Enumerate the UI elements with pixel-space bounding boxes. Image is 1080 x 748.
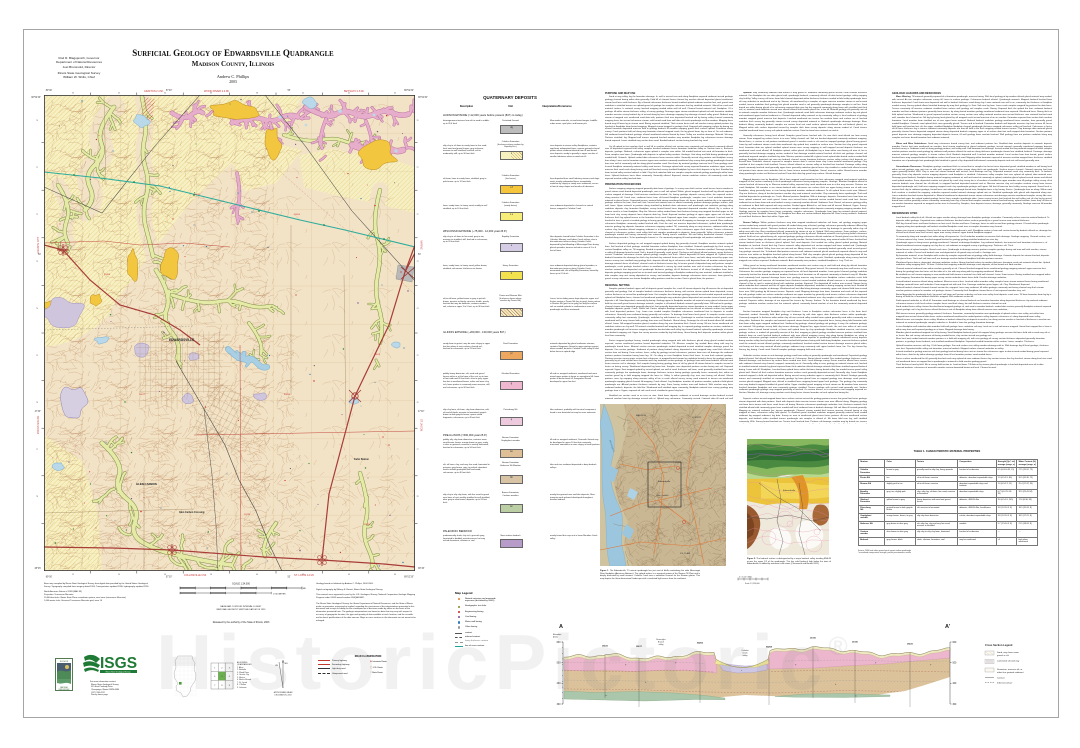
svg-text:Glen Carbon Crossing: Glen Carbon Crossing — [179, 511, 205, 514]
svg-text:54: 54 — [118, 574, 120, 576]
svg-text:MARINE: MARINE — [420, 240, 423, 250]
svg-text:ILLINOIS: ILLINOIS — [60, 661, 69, 663]
svg-text:71: 71 — [36, 167, 38, 169]
svg-text:84206: 84206 — [284, 394, 291, 396]
svg-text:SCALE 1:24,000: SCALE 1:24,000 — [232, 583, 250, 586]
svg-text:GRAFTON 2.4 MI.: GRAFTON 2.4 MI. — [144, 90, 164, 93]
svg-text:34: 34 — [164, 93, 166, 95]
svg-text:gravel or silt: gravel or silt — [997, 654, 1009, 657]
svg-text:70: 70 — [417, 120, 419, 122]
svg-text:GRANITE CITY: GRANITE CITY — [37, 236, 40, 253]
svg-text:77: 77 — [36, 449, 38, 451]
svg-text:Scale 1:1,250,000: Scale 1:1,250,000 — [745, 583, 760, 585]
svg-text:COUNTY: COUNTY — [692, 417, 702, 419]
svg-text:MADISON: MADISON — [636, 414, 647, 417]
svg-text:78: 78 — [417, 496, 419, 498]
svg-text:38°45': 38°45' — [418, 568, 425, 570]
svg-text:89°52'30": 89°52'30" — [404, 577, 414, 579]
svg-text:1 KILOMETER: 1 KILOMETER — [273, 593, 286, 595]
svg-text:Diamicton, massive silt, or: Diamicton, massive silt, or — [997, 668, 1023, 671]
svg-text:78: 78 — [36, 496, 38, 498]
svg-text:73: 73 — [36, 261, 38, 263]
svg-text:60: 60 — [256, 574, 258, 576]
svg-text:56: 56 — [164, 574, 166, 576]
svg-text:26617: 26617 — [139, 394, 146, 396]
svg-text:ST. JACOB: ST. JACOB — [420, 419, 423, 431]
svg-text:89°00': 89°00' — [46, 90, 53, 92]
svg-text:47'30": 47'30" — [418, 411, 425, 413]
svg-text:57'30": 57'30" — [166, 90, 173, 92]
svg-text:26488: 26488 — [104, 274, 111, 276]
svg-text:47'30": 47'30" — [35, 411, 42, 413]
svg-text:75: 75 — [417, 355, 419, 357]
svg-text:ST. LOUIS 14 MI.: ST. LOUIS 14 MI. — [294, 573, 314, 577]
svg-text:74: 74 — [417, 308, 419, 310]
svg-text:77: 77 — [417, 449, 419, 451]
svg-text:72: 72 — [417, 214, 419, 216]
svg-text:70: 70 — [36, 120, 38, 122]
svg-text:26812: 26812 — [374, 354, 381, 356]
svg-text:RESOURCES: RESOURCES — [59, 689, 71, 691]
svg-text:71: 71 — [417, 167, 419, 169]
svg-text:MONKS MOUND: MONKS MOUND — [37, 415, 40, 434]
svg-text:73: 73 — [417, 261, 419, 263]
svg-text:ISGS: ISGS — [100, 655, 137, 672]
svg-text:COLLINSVILLE 6 MI.: COLLINSVILLE 6 MI. — [184, 574, 207, 577]
svg-text:38°52'30": 38°52'30" — [31, 97, 41, 99]
svg-text:38: 38 — [256, 93, 258, 95]
svg-text:52: 52 — [72, 574, 74, 576]
svg-text:38°52'30": 38°52'30" — [418, 97, 428, 99]
svg-text:EDWARDSVILLE: EDWARDSVILLE — [169, 338, 194, 342]
svg-text:other fine grained sediment: other fine grained sediment — [997, 671, 1024, 674]
svg-text:BETHALTO 1.8 MI.: BETHALTO 1.8 MI. — [344, 90, 365, 93]
svg-text:Inferred contact: Inferred contact — [997, 682, 1013, 685]
svg-text:40: 40 — [302, 93, 304, 95]
svg-text:26733: 26733 — [244, 514, 251, 516]
svg-text:44: 44 — [394, 93, 396, 95]
svg-text:26631: 26631 — [194, 194, 201, 196]
svg-text:30: 30 — [72, 93, 74, 95]
svg-text:26590: 26590 — [364, 524, 371, 526]
svg-text:89°52'30": 89°52'30" — [404, 90, 414, 92]
svg-text:GLEN CARBON: GLEN CARBON — [136, 482, 157, 486]
svg-text:Glen Carbon: Glen Carbon — [656, 494, 669, 497]
svg-text:72: 72 — [36, 214, 38, 216]
svg-text:58: 58 — [210, 574, 212, 576]
svg-text:Edwardsville: Edwardsville — [658, 480, 671, 483]
svg-text:26204: 26204 — [294, 214, 301, 216]
svg-text:ST. CLAIR: ST. CLAIR — [680, 552, 691, 555]
svg-text:64: 64 — [348, 574, 350, 576]
svg-text:89°00': 89°00' — [46, 577, 53, 579]
svg-text:76: 76 — [36, 402, 38, 404]
svg-text:Kuhn Station: Kuhn Station — [354, 458, 369, 461]
svg-text:74: 74 — [36, 308, 38, 310]
svg-text:75: 75 — [36, 355, 38, 357]
svg-text:300: 300 — [953, 704, 958, 706]
svg-text:MILE: MILE — [303, 588, 306, 590]
svg-text:0 1 2 3 4 5 Miles: 0 1 2 3 4 5 Miles — [739, 576, 752, 578]
svg-text:Contact: Contact — [997, 677, 1005, 680]
svg-text:38°45': 38°45' — [35, 568, 42, 570]
svg-text:32: 32 — [118, 93, 120, 95]
svg-text:66: 66 — [394, 574, 396, 576]
svg-text:Cross Section Legend: Cross Section Legend — [985, 643, 1013, 647]
svg-text:76: 76 — [417, 402, 419, 404]
svg-text:Illinois State Geological Surv: Illinois State Geological Survey — [106, 670, 131, 673]
svg-text:57'30": 57'30" — [166, 577, 173, 579]
svg-text:WOOD RIVER 2.4 MI.: WOOD RIVER 2.4 MI. — [204, 89, 230, 93]
svg-text:Edwardsville: Edwardsville — [783, 489, 796, 492]
svg-text:Laminated silt and clay: Laminated silt and clay — [997, 660, 1020, 663]
